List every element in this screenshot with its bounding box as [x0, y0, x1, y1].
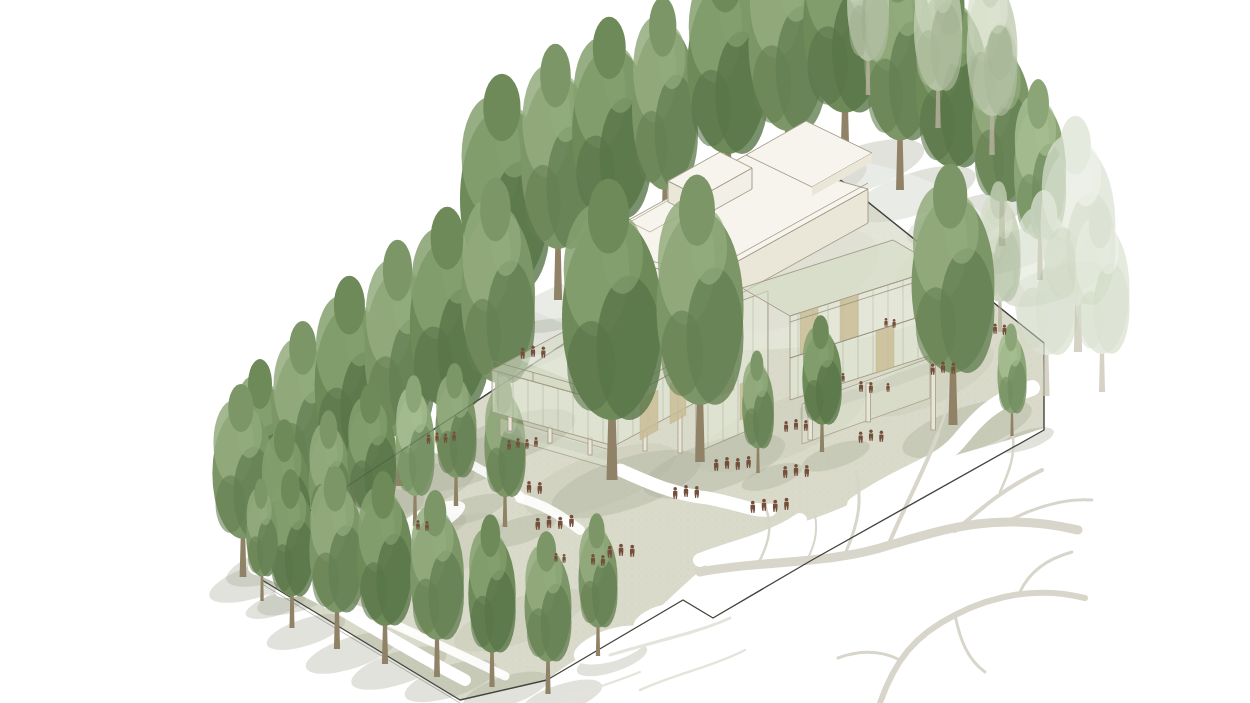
site-rendering: Architectural axonometric site illustrat… — [0, 0, 1250, 703]
tree — [1074, 201, 1129, 392]
illustration-canvas: Architectural axonometric site illustrat… — [0, 0, 1250, 703]
